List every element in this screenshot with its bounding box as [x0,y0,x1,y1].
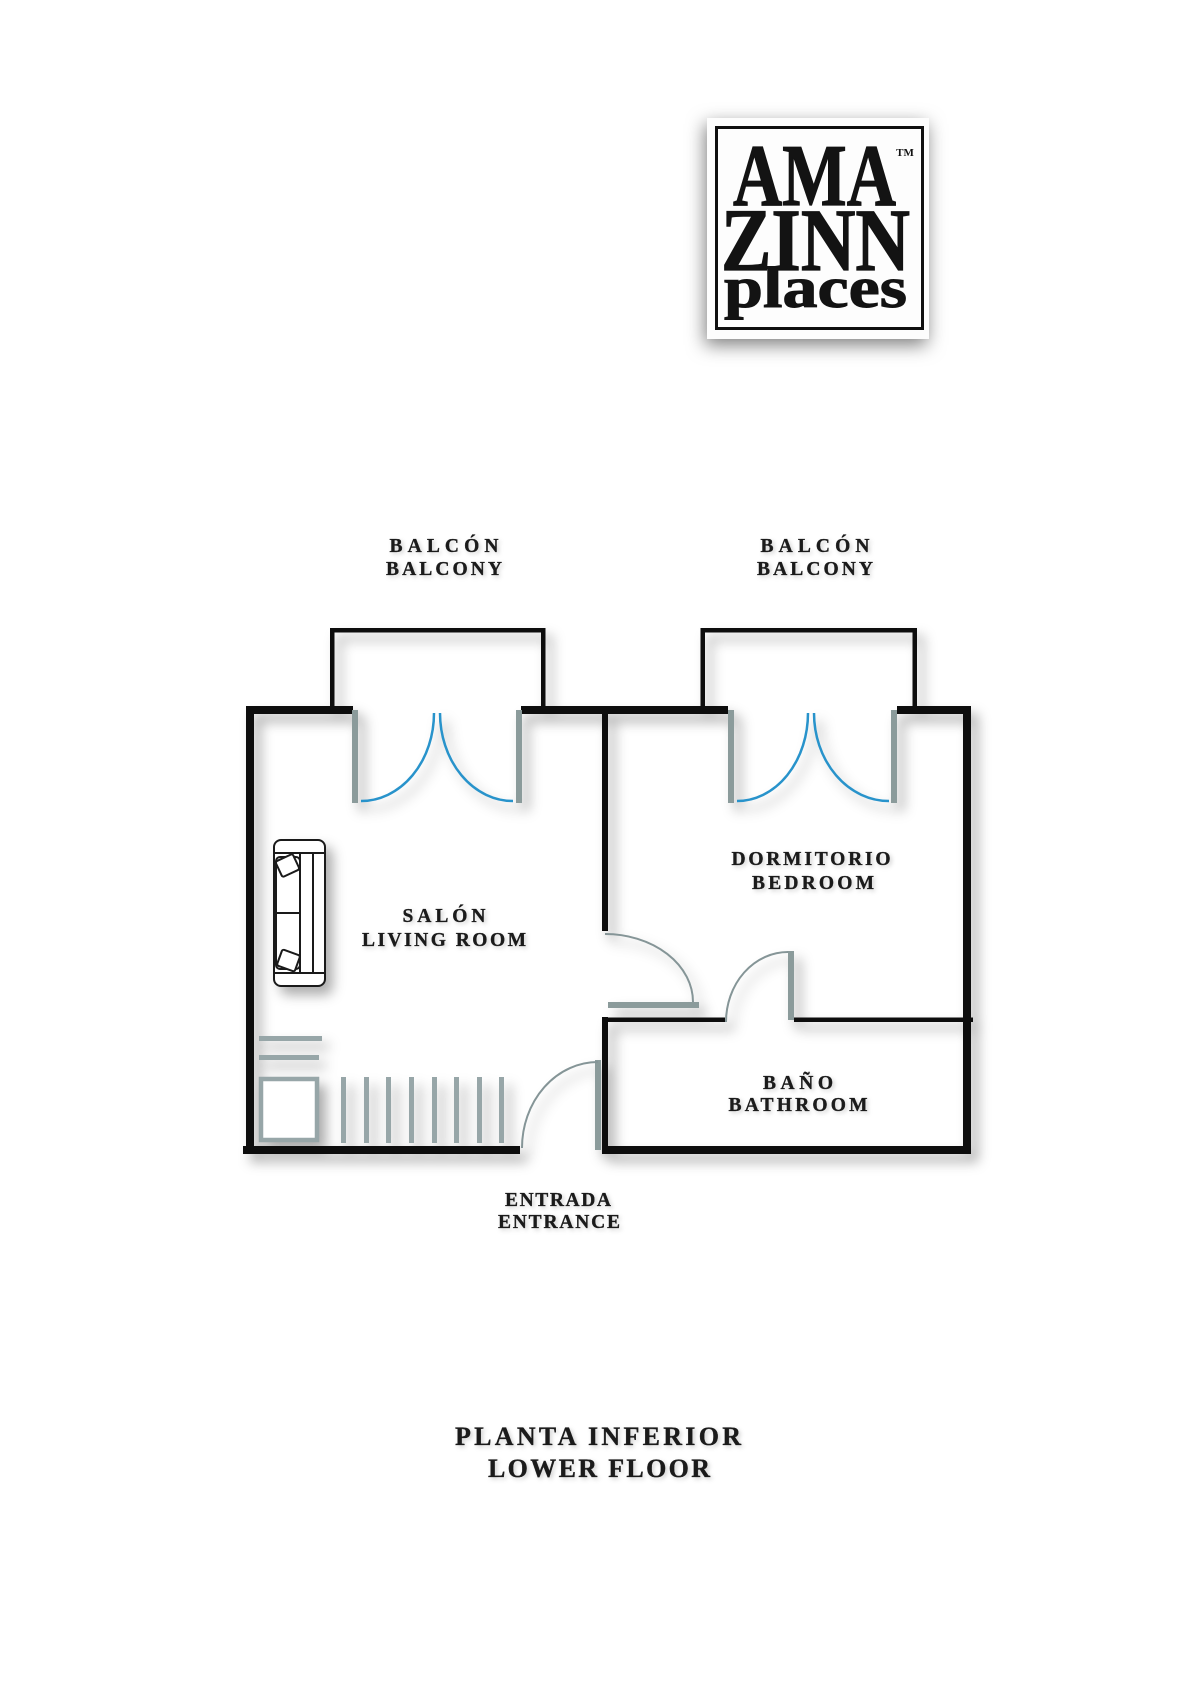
svg-text:LIVING ROOM: LIVING ROOM [362,930,526,951]
svg-text:BEDROOM: BEDROOM [752,873,874,894]
svg-text:DORMITORIO: DORMITORIO [732,849,891,870]
svg-text:BATHROOM: BATHROOM [729,1095,868,1116]
svg-text:LOWER FLOOR: LOWER FLOOR [488,1454,710,1483]
svg-text:ENTRADA: ENTRADA [505,1190,611,1211]
svg-text:BALCONY: BALCONY [757,559,873,580]
svg-text:places: places [724,255,907,320]
svg-text:BALCÓN: BALCÓN [390,535,499,557]
svg-text:PLANTA INFERIOR: PLANTA INFERIOR [455,1422,741,1451]
svg-text:BALCÓN: BALCÓN [761,535,870,557]
svg-text:SALÓN: SALÓN [403,905,486,927]
svg-text:ENTRANCE: ENTRANCE [498,1212,620,1233]
svg-text:TM: TM [896,147,914,159]
svg-text:BALCONY: BALCONY [386,559,502,580]
svg-text:BAÑO: BAÑO [763,1072,833,1094]
